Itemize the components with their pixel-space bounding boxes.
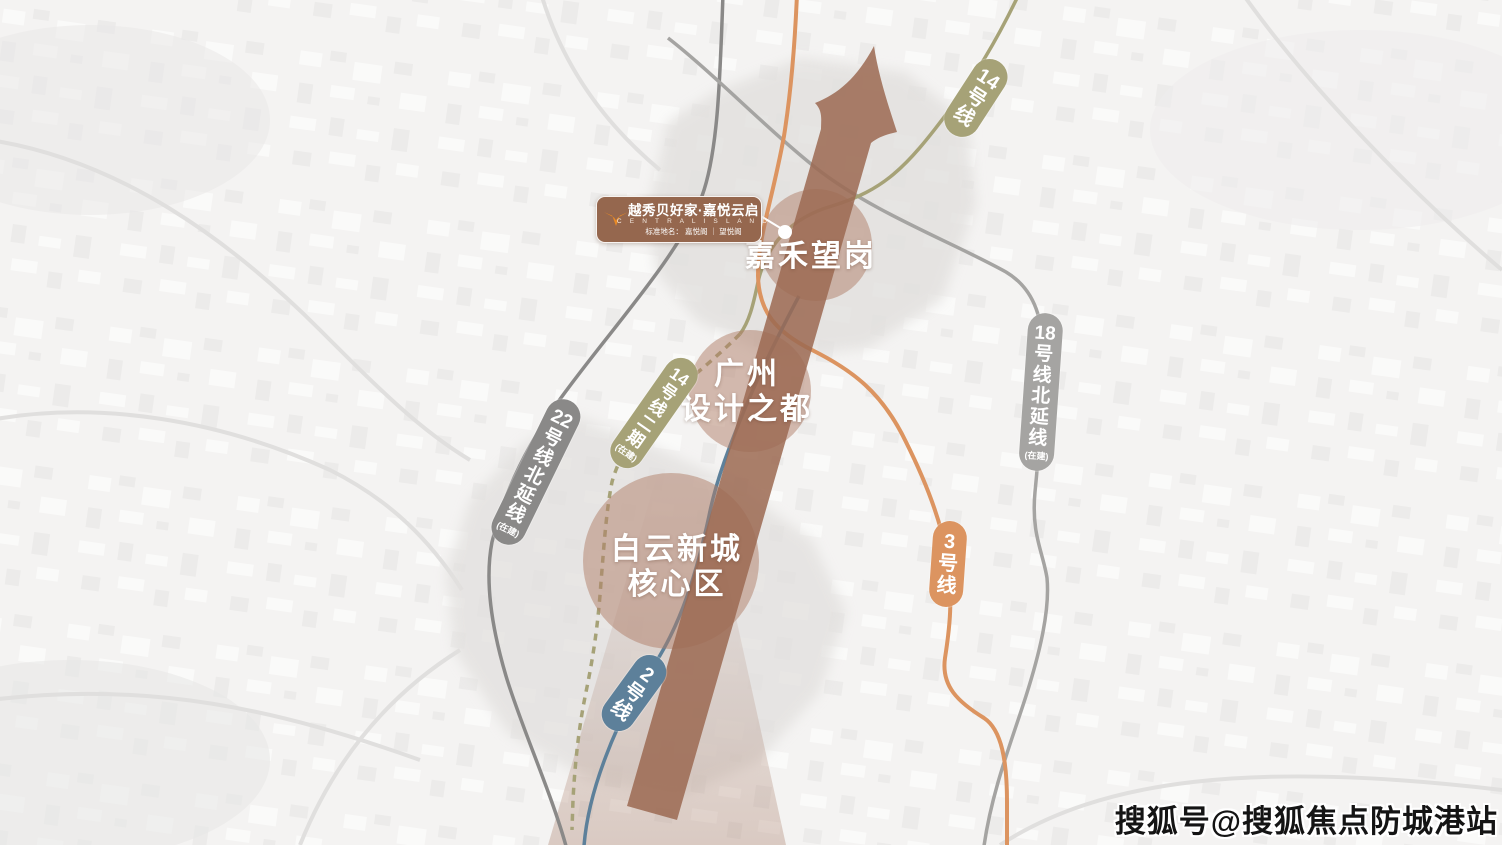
badge-char: 18 [1032,322,1059,345]
badge-char: 3 [941,531,958,554]
project-logo-card: 越秀贝好家·嘉悦云启 C E N T R A L I S L A N D 标准地… [596,196,762,243]
logo-subtitle-line: 标准地名： 嘉悦阁 ｜ 望悦阁 [645,227,741,237]
badge-char: 延 [1027,406,1051,429]
transit-location-map: 嘉禾望岗 广州 设计之都 白云新城 核心区 14号线 14号线二期(在建) 18… [0,0,1502,845]
zone-label-line: 核心区 [611,567,743,602]
badge-char: 线 [1030,364,1054,387]
badge-char: 线 [1026,427,1050,450]
logo-text: 越秀贝好家·嘉悦云启 C E N T R A L I S L A N D 标准地… [633,203,754,237]
badge-char: 号 [935,552,960,576]
zone-label-line: 嘉禾望岗 [745,239,877,274]
project-location-dot [778,225,792,239]
line-3-badge: 3号线 [928,520,968,608]
logo-english-line: C E N T R A L I S L A N D [617,218,770,226]
logo-brand-line: 越秀贝好家·嘉悦云启 [628,203,759,218]
badge-status: (在建) [1024,451,1049,462]
watermark-text: 搜狐号@搜狐焦点防城港站 [1115,796,1498,841]
zone-label-line: 设计之都 [681,392,813,427]
zone-label-line: 广州 [681,357,813,392]
zone-label-design-capital: 广州 设计之都 [681,357,813,427]
badge-char: 北 [1028,385,1052,408]
badge-char: 线 [934,574,959,598]
badge-char: 号 [1031,343,1055,366]
zone-label-baiyun-core: 白云新城 核心区 [611,532,743,602]
zone-label-jiahewanggang: 嘉禾望岗 [745,239,877,274]
zone-label-line: 白云新城 [611,532,743,567]
